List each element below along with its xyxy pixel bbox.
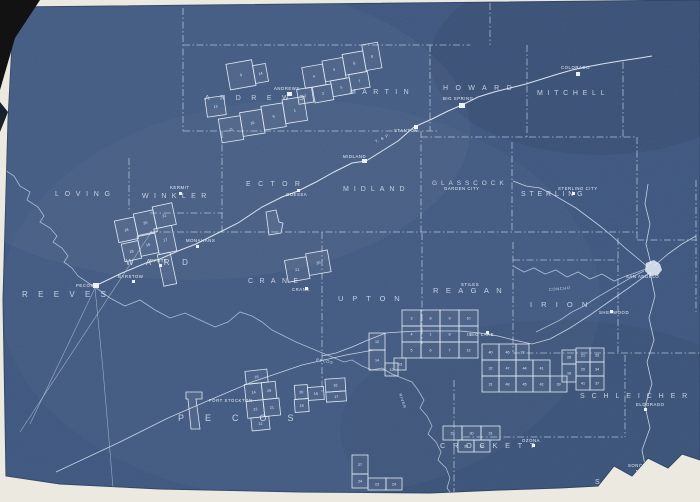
town-label-pecos: PECOS [76,283,94,288]
survey-block-number: 40 [488,350,492,354]
survey-block-number: 23 [520,350,524,354]
survey-block-number: 16 [333,383,337,387]
survey-block-number: 46 [505,350,509,354]
survey-block-number: 12 [466,348,470,352]
survey-block-number: 11 [229,127,233,132]
town-label-garden-city: GARDEN CITY [444,186,479,191]
town-label-crane: CRANE [292,287,310,292]
survey-block-number: 37 [595,381,599,385]
survey-block-number: 18 [129,249,134,254]
survey-block-number: 15 [314,392,318,396]
town-label-andrews: ANDREWS [274,86,300,91]
survey-block-number: 13 [398,362,402,366]
survey-block-number: 20 [299,390,303,394]
survey-block-number: 34 [595,367,599,371]
county-label-loving: LOVING [55,191,116,198]
survey-block-number: 11 [467,332,471,336]
survey-block-number: 29 [450,431,454,435]
town-marker-colorado [576,72,580,76]
town-marker-big-spring [459,103,465,108]
survey-block-number: 32 [480,444,484,448]
county-label-irion: IRION [530,300,596,309]
survey-block-number: 20 [316,261,321,266]
town-label-midland: MIDLAND [343,154,366,159]
county-label-schleicher: SCHLEICHER [580,393,694,400]
town-label-kermit: KERMIT [170,185,190,190]
town-label-monahans: MONAHANS [186,238,215,243]
survey-block-number: 31 [488,431,492,435]
town-marker-barstow [132,280,135,283]
county-label-reeves: REEVES [22,290,116,299]
survey-block-number: 19 [567,371,571,375]
survey-block-number: 14 [375,358,379,362]
town-marker-kermit [179,192,182,195]
county-label-howard: HOWARD [443,85,519,92]
town-label-sherwood: SHERWOOD [599,310,629,315]
town-marker-sterling-city [572,192,575,195]
survey-block-number: 10 [466,316,470,320]
survey-block-number: 20 [581,367,585,371]
county-map-svg: ANDREWSMARTINHOWARDMITCHELLLOVINGWINKLER… [0,0,700,502]
survey-block-number: 13 [213,105,218,110]
blueprint-map-page: ANDREWSMARTINHOWARDMITCHELLLOVINGWINKLER… [0,0,700,502]
town-marker-monahans [196,245,199,248]
survey-block-number: 44 [522,366,526,370]
town-label-colorado: COLORADO [561,65,590,70]
survey-block-number: 33 [464,444,468,448]
town-marker-ozona [532,444,535,447]
survey-block-number: 33 [595,353,599,357]
survey-block-number: 21 [295,268,300,273]
survey-block-number: 14 [251,390,256,394]
town-label-stiles: STILES [461,282,479,287]
county-label-martin: MARTIN [350,89,415,96]
town-label-stanton: STANTON [394,128,418,133]
survey-block-number: 10 [250,121,255,126]
survey-block-number: 3 [410,316,412,320]
survey-block-number: 12 [375,340,379,344]
survey-block-number: 23 [253,407,258,411]
town-label-eldorado: ELDORADO [636,402,665,407]
survey-block-number: 4 [410,332,412,336]
survey-block-number: 24 [358,479,362,483]
survey-block-number: 28 [567,355,571,359]
survey-block-group-andrews-13: 13 [205,96,226,117]
survey-block-number: 41 [539,366,543,370]
survey-block-number: 18 [124,228,129,233]
survey-block-number: 30 [469,431,473,435]
county-label-pecos: PECOS [178,413,315,423]
survey-block-number: 21 [162,214,167,219]
county-label-upton: UPTON [338,294,409,303]
county-label-sterling: STERLING [521,191,586,198]
survey-block-number: 31 [488,382,492,386]
survey-block-number: 12 [389,368,393,372]
map-content: ANDREWSMARTINHOWARDMITCHELLLOVINGWINKLER… [0,0,700,502]
survey-block-number: 21 [270,405,275,409]
survey-block-number: 39 [556,382,560,386]
survey-block-number: 19 [300,404,304,408]
county-label-reagan: REAGAN [433,286,509,295]
town-marker-midland [362,159,367,163]
town-label-big-spring: BIG SPRING [443,96,474,101]
town-marker-eldorado [644,408,647,411]
town-label-barstow: BARSTOW [118,274,144,279]
county-label-mitchell: MITCHELL [537,90,609,97]
survey-block-number: 14 [258,71,263,76]
survey-block-number: 21 [581,353,585,357]
survey-block-number: 17 [334,395,338,399]
paper-tear [608,473,622,487]
survey-block-number: 41 [581,381,585,385]
survey-block-number: 20 [143,221,148,226]
town-label-odessa: ODESSA [286,192,307,197]
survey-block-number: 22 [258,422,263,426]
town-label-sterling-city: STERLING CITY [558,186,598,191]
survey-block-number: 19 [146,243,151,248]
town-marker-andrews [287,92,292,96]
town-marker-pecos [93,283,99,288]
survey-block-number: 32 [488,366,492,370]
survey-block-number: 8 [429,316,431,320]
survey-block-number: 8 [448,332,450,336]
survey-block-number: 5 [410,348,412,352]
county-label-midland: MIDLAND [343,186,410,193]
survey-block-number: 25 [267,389,272,393]
survey-block-number: 27 [358,463,362,467]
survey-block-number: 7 [448,348,450,352]
county-label-winkler: WINKLER [142,193,212,200]
survey-block-number: 42 [539,382,543,386]
county-label-ector: ECTOR [246,181,307,188]
town-label-san-angelo: SAN ANGELO [626,274,659,279]
survey-block-number: 24 [392,482,396,486]
survey-block-number: 16 [254,375,259,379]
town-label-ozona: OZONA [522,438,540,443]
survey-block-number: 1 [429,332,431,336]
survey-block-number: 45 [522,382,526,386]
survey-block-number: 48 [505,382,509,386]
survey-block-number: 17 [163,238,168,243]
survey-block-number: 23 [375,482,379,486]
survey-block-number: 47 [505,366,509,370]
survey-block-number: 9 [448,316,450,320]
survey-block-number: 6 [429,348,431,352]
